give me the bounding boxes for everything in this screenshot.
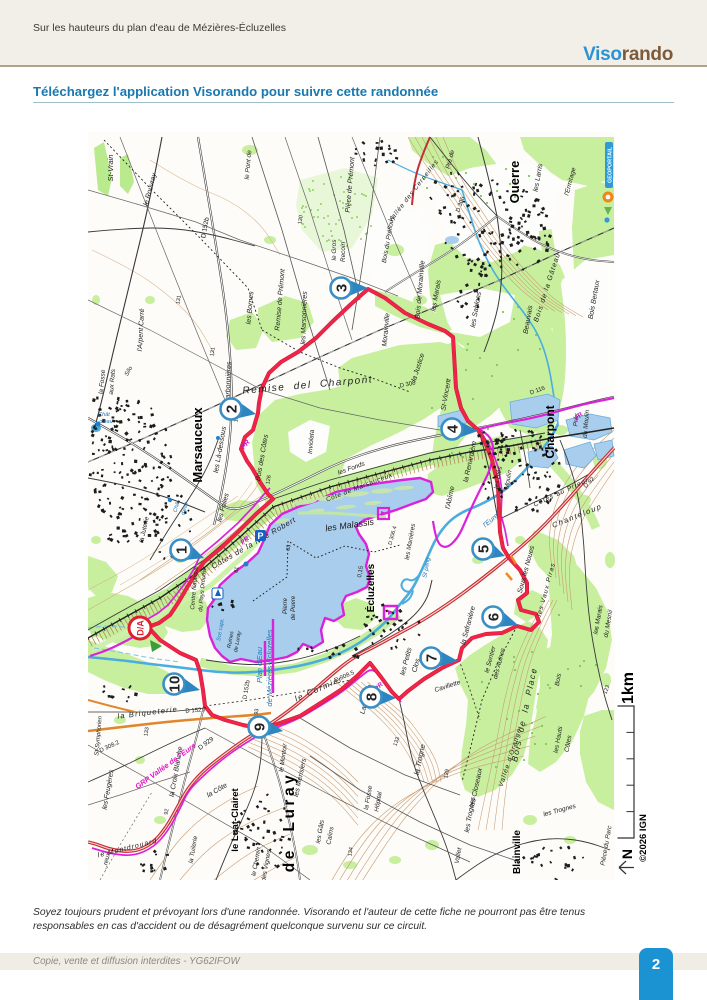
svg-text:Marsauceux: Marsauceux xyxy=(190,407,205,483)
svg-text:D/A: D/A xyxy=(136,620,146,636)
svg-text:le Luat-Clairet: le Luat-Clairet xyxy=(230,787,241,851)
svg-text:2: 2 xyxy=(224,405,241,413)
svg-text:de Puere: de Puere xyxy=(291,595,297,620)
svg-text:de Mézières-Écluzelles: de Mézières-Écluzelles xyxy=(265,629,274,706)
svg-text:1: 1 xyxy=(174,546,191,554)
svg-text:GEOPORTAIL: GEOPORTAIL xyxy=(608,146,614,183)
svg-text:10: 10 xyxy=(167,676,184,693)
svg-text:Ouerre: Ouerre xyxy=(507,161,522,204)
svg-text:Pierre: Pierre xyxy=(283,597,289,614)
svg-text:Chât: Chât xyxy=(98,412,110,418)
svg-text:Recoin: Recoin xyxy=(340,241,347,262)
svg-text:Écluzelles: Écluzelles xyxy=(364,563,377,612)
svg-text:le Gros: le Gros xyxy=(331,239,338,261)
svg-text:81: 81 xyxy=(234,566,241,573)
svg-text:6: 6 xyxy=(486,613,503,621)
svg-text:92: 92 xyxy=(164,808,171,815)
svg-text:4: 4 xyxy=(445,424,462,433)
svg-text:7: 7 xyxy=(424,654,441,662)
svg-text:St-Vrain: St-Vrain xyxy=(106,155,115,182)
svg-text:9: 9 xyxy=(252,723,269,731)
svg-text:3: 3 xyxy=(334,284,351,292)
svg-text:Charpont: Charpont xyxy=(543,405,557,458)
svg-text:Plan d'Eau: Plan d'Eau xyxy=(255,646,264,683)
svg-text:5: 5 xyxy=(476,545,493,553)
svg-text:Blainville: Blainville xyxy=(512,830,523,874)
svg-text:8: 8 xyxy=(364,693,381,701)
svg-text:1km: 1km xyxy=(620,672,637,704)
svg-text:P: P xyxy=(257,531,263,541)
svg-text:93: 93 xyxy=(254,708,261,715)
svg-text:N: N xyxy=(619,849,635,859)
svg-text:de Luray: de Luray xyxy=(281,772,298,872)
svg-text:83: 83 xyxy=(286,544,293,551)
svg-text:d'eau: d'eau xyxy=(99,419,112,425)
svg-text:©2026 IGN: ©2026 IGN xyxy=(638,814,649,862)
